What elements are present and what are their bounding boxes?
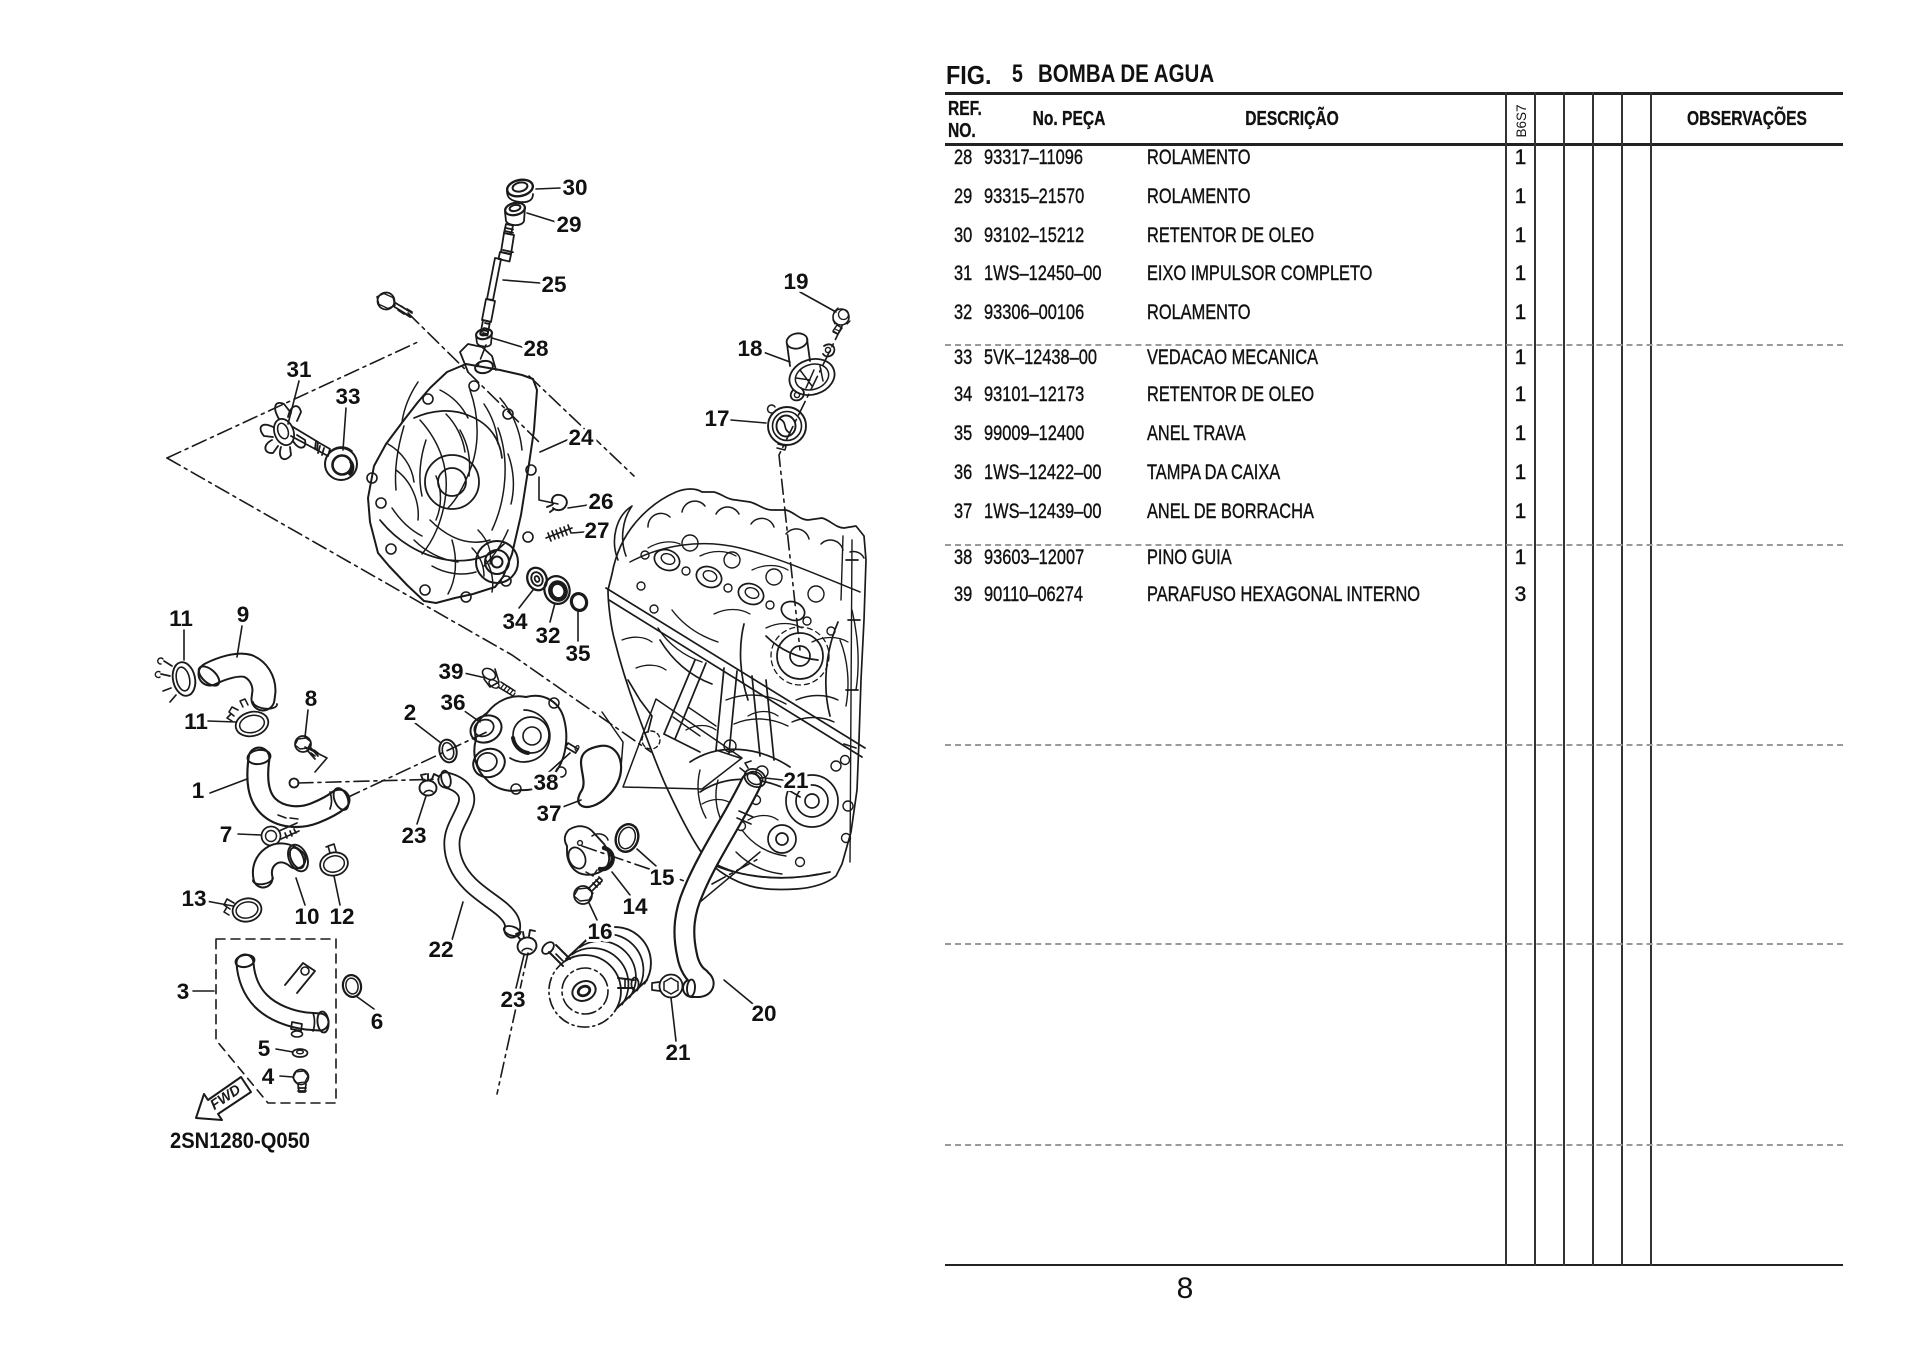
svg-text:8: 8 (305, 686, 318, 711)
svg-text:36: 36 (440, 690, 465, 715)
svg-text:23: 23 (401, 823, 426, 848)
svg-text:39: 39 (438, 659, 463, 684)
svg-text:34: 34 (502, 609, 528, 634)
svg-text:31: 31 (286, 357, 311, 382)
svg-text:21: 21 (783, 768, 808, 793)
svg-text:3: 3 (177, 979, 190, 1004)
svg-text:21: 21 (665, 1040, 690, 1065)
svg-text:28: 28 (523, 336, 548, 361)
svg-text:18: 18 (737, 336, 762, 361)
svg-text:38: 38 (533, 770, 558, 795)
svg-text:7: 7 (220, 822, 233, 847)
svg-text:1: 1 (192, 778, 205, 803)
svg-text:27: 27 (584, 518, 609, 543)
svg-text:9: 9 (237, 602, 250, 627)
svg-text:29: 29 (556, 212, 581, 237)
svg-text:25: 25 (541, 272, 566, 297)
svg-text:22: 22 (428, 937, 453, 962)
svg-text:16: 16 (587, 919, 612, 944)
svg-text:12: 12 (329, 904, 354, 929)
svg-text:6: 6 (371, 1009, 384, 1034)
svg-text:14: 14 (622, 894, 648, 919)
svg-text:20: 20 (751, 1001, 776, 1026)
svg-text:24: 24 (568, 425, 594, 450)
svg-text:33: 33 (335, 384, 360, 409)
svg-text:30: 30 (562, 175, 587, 200)
svg-text:17: 17 (704, 406, 729, 431)
svg-text:2SN1280-Q050: 2SN1280-Q050 (170, 1128, 310, 1153)
svg-text:32: 32 (535, 623, 560, 648)
svg-text:10: 10 (294, 904, 319, 929)
svg-text:23: 23 (500, 987, 525, 1012)
svg-text:4: 4 (262, 1064, 275, 1089)
svg-text:5: 5 (258, 1036, 271, 1061)
svg-text:26: 26 (588, 489, 613, 514)
svg-text:37: 37 (536, 801, 561, 826)
svg-text:2: 2 (404, 700, 417, 725)
svg-text:35: 35 (565, 641, 590, 666)
svg-text:11: 11 (169, 606, 193, 631)
svg-text:19: 19 (783, 269, 808, 294)
svg-text:11: 11 (184, 709, 208, 734)
svg-text:15: 15 (649, 865, 674, 890)
svg-text:13: 13 (181, 886, 206, 911)
